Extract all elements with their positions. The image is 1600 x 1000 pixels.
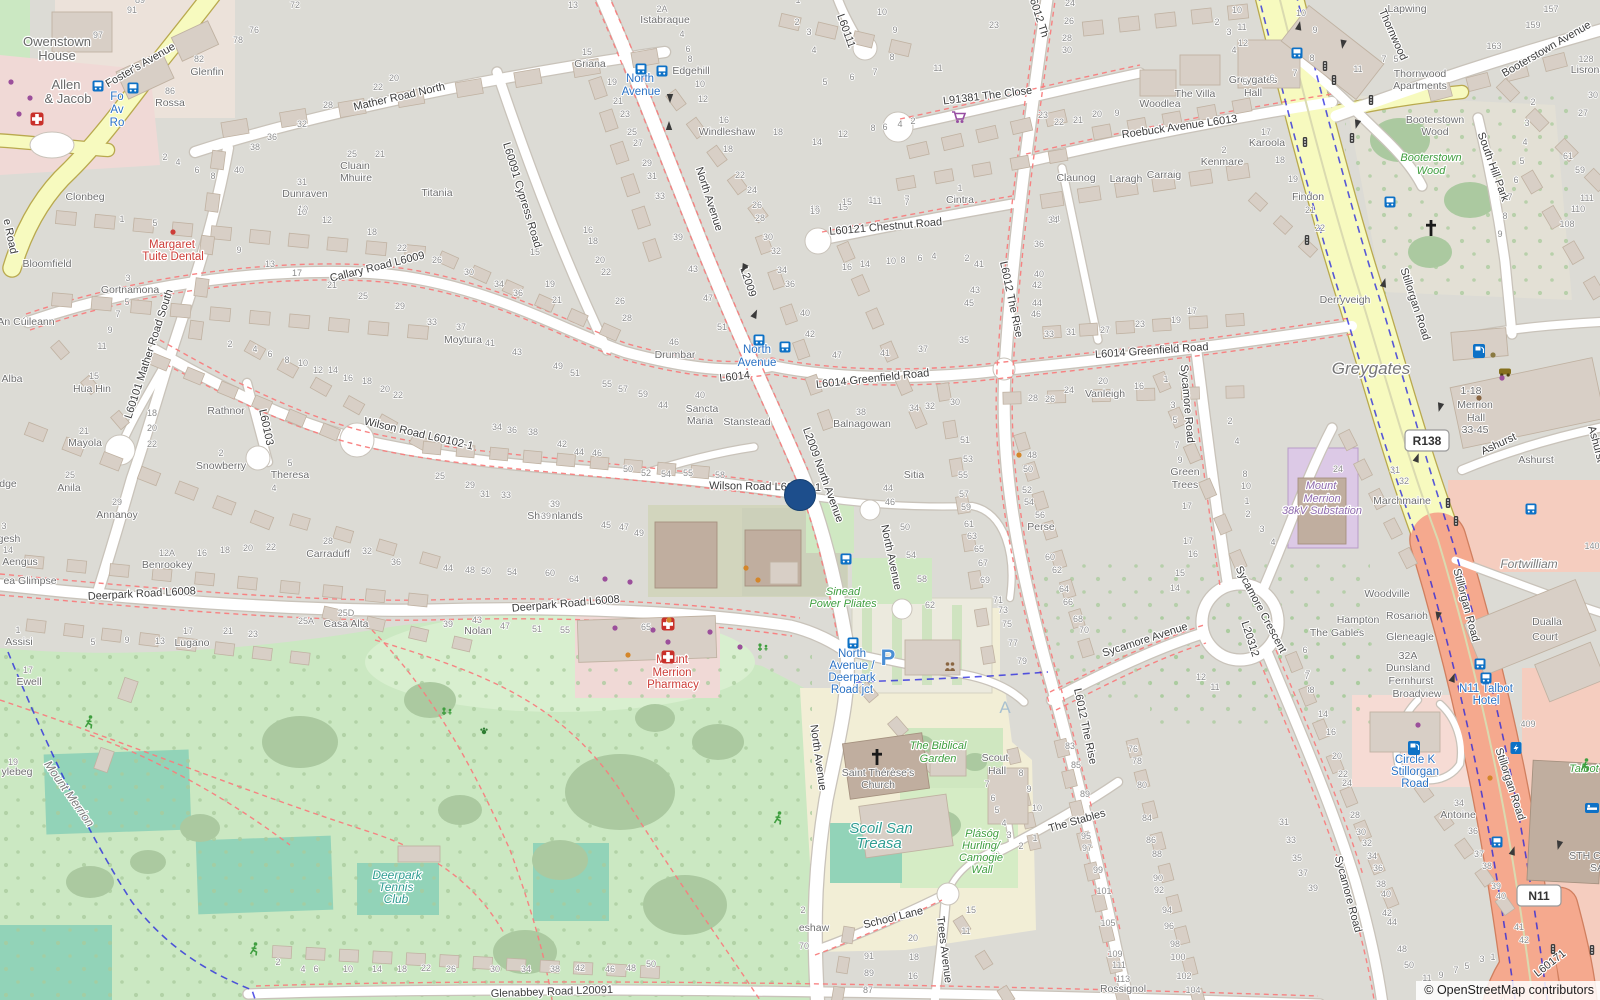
map-label: Lapwing xyxy=(1387,3,1426,15)
map-label: 28 xyxy=(622,313,632,323)
map-label: 35 xyxy=(1292,853,1302,863)
map-label: 32A xyxy=(1399,650,1418,662)
building xyxy=(557,453,576,467)
poi-dot xyxy=(707,629,712,634)
building xyxy=(1232,98,1252,114)
map-label: 5 xyxy=(152,218,157,228)
tree-cluster xyxy=(635,704,675,732)
building xyxy=(205,193,220,213)
building xyxy=(210,150,225,170)
poi-dot xyxy=(755,577,760,582)
bus-icon xyxy=(1385,197,1396,208)
map-label: 48 xyxy=(1027,450,1037,460)
map-label: 91 xyxy=(127,5,137,15)
selected-location-marker[interactable] xyxy=(785,480,816,511)
map-label: 26 xyxy=(1064,16,1074,26)
building xyxy=(837,241,855,262)
map-label: 2 xyxy=(1245,509,1250,519)
map-label: North xyxy=(838,648,866,660)
map-label: 36 xyxy=(513,288,523,298)
map-label: 26 xyxy=(615,296,625,306)
map-label: Tuite Dental xyxy=(142,251,204,263)
map-label: 10 xyxy=(1296,8,1306,18)
map-label: 12A xyxy=(159,548,175,558)
map-label: 32 xyxy=(297,119,307,129)
map-label: 104 xyxy=(1185,985,1200,995)
map-label: Snowberry xyxy=(196,460,247,472)
map-label: 37 xyxy=(456,322,466,332)
map-label: 5 xyxy=(1464,961,1469,971)
building xyxy=(1226,386,1244,398)
building xyxy=(323,585,343,599)
map-label: 7 xyxy=(1453,965,1458,975)
map-label: 36 xyxy=(1373,863,1383,873)
osm-map: Foster's AvenueMather Road NorthCallary … xyxy=(0,0,1600,1000)
map-label: 40 xyxy=(1381,889,1391,899)
map-label: House xyxy=(38,48,76,63)
map-label: 46 xyxy=(885,497,895,507)
junction-circle xyxy=(30,132,74,158)
map-label: Av xyxy=(110,104,123,116)
map-label: 1 xyxy=(1032,833,1037,843)
building xyxy=(974,608,989,627)
map-label: 50 xyxy=(900,522,910,532)
map-label: 20 xyxy=(380,384,390,394)
map-label: 22 xyxy=(421,963,431,973)
poi-dot xyxy=(1487,775,1492,780)
tree-cluster xyxy=(692,724,744,760)
building xyxy=(770,562,798,584)
building xyxy=(91,296,112,311)
map-label: 25 xyxy=(435,471,445,481)
map-label: 6 xyxy=(990,793,995,803)
poi-dot xyxy=(650,627,655,632)
map-label: 20 xyxy=(1098,376,1108,386)
oneway-arrow xyxy=(1436,402,1445,412)
map-label: 64 xyxy=(569,574,579,584)
map-label: 4 xyxy=(1234,436,1239,446)
map-label: 8 xyxy=(687,54,692,64)
map-label: Garden xyxy=(920,753,957,765)
map-label: 15 xyxy=(966,905,976,915)
map-label: 7 xyxy=(115,309,120,319)
map-label: 4 xyxy=(1231,45,1236,55)
map-label: The Biblical xyxy=(910,740,967,752)
map-label: 14 xyxy=(328,365,338,375)
map-label: Plásóg xyxy=(965,828,1000,840)
map-label: 17 xyxy=(183,626,193,636)
map-label: 50 xyxy=(646,959,656,969)
map-label: 66 xyxy=(1063,597,1073,607)
osm-attribution[interactable]: © OpenStreetMap contributors xyxy=(1416,981,1600,1000)
map-label: Perse xyxy=(1027,521,1055,533)
map-label: Rossa xyxy=(155,97,185,109)
map-label: Marchmaine xyxy=(1373,495,1431,507)
building xyxy=(214,642,234,656)
map-label: North xyxy=(626,73,654,85)
map-label: 4 xyxy=(811,45,816,55)
building xyxy=(934,169,954,184)
map-label: Avenue / xyxy=(829,660,875,672)
map-label: 8 xyxy=(1018,768,1023,778)
map-label: 1 xyxy=(795,0,800,5)
map-label: 13 xyxy=(155,636,165,646)
map-label: 7 xyxy=(872,67,877,77)
map-label: 4 xyxy=(300,964,305,974)
building xyxy=(643,238,662,261)
svg-text:N11: N11 xyxy=(1528,889,1550,903)
map-label: 26 xyxy=(1045,394,1055,404)
map-label: 50 xyxy=(1404,960,1414,970)
building xyxy=(1273,216,1292,235)
map-label: Rossignol xyxy=(1100,983,1146,995)
map-label: 40 xyxy=(234,165,244,175)
map-label: Casa Alta xyxy=(324,618,369,630)
building xyxy=(831,986,844,1000)
map-label: Sancta xyxy=(686,403,719,415)
map-label: N11 Talbot xyxy=(1459,683,1514,695)
map-label: 14 xyxy=(860,259,870,269)
map-label: 3 xyxy=(806,27,811,37)
map-label: 46 xyxy=(592,448,602,458)
building xyxy=(599,109,618,132)
building xyxy=(249,229,270,244)
map-label: 7 xyxy=(1292,68,1297,78)
map-label: Power Pliates xyxy=(809,598,877,610)
map-label: 2 xyxy=(1214,17,1219,27)
map-label: 41 xyxy=(974,259,984,269)
map-label: 99 xyxy=(1093,865,1103,875)
map-label: 88 xyxy=(1152,849,1162,859)
map-label: 25 xyxy=(358,291,368,301)
map-label: 16 xyxy=(197,548,207,558)
building xyxy=(1082,20,1103,36)
map-label: 140 xyxy=(1584,541,1599,551)
map-label: 111 xyxy=(1580,193,1594,203)
map-label: 5 xyxy=(1172,415,1177,425)
map-label: 3 xyxy=(1226,27,1231,37)
building xyxy=(1584,168,1600,191)
map-canvas[interactable]: Foster's AvenueMather Road NorthCallary … xyxy=(0,0,1600,1000)
map-label: 45 xyxy=(601,520,611,530)
poi-dot xyxy=(743,565,748,570)
map-label: 2 xyxy=(1227,416,1232,426)
map-label: 7 xyxy=(904,197,909,207)
map-label: 4 xyxy=(931,251,936,261)
map-label: 7 xyxy=(1174,440,1179,450)
map-label: 12 xyxy=(838,129,848,139)
traffic-icon xyxy=(1332,75,1336,85)
map-label: 19 xyxy=(1288,174,1298,184)
map-label: 41 xyxy=(880,348,890,358)
map-label: 89 xyxy=(135,0,145,5)
map-label: 43 xyxy=(512,347,522,357)
map-label: 32 xyxy=(771,246,781,256)
map-label: 34 xyxy=(909,403,919,413)
building xyxy=(194,278,209,298)
map-label: Merrion xyxy=(1457,399,1493,411)
junction-circle xyxy=(246,446,270,470)
bus-icon xyxy=(657,66,668,77)
map-label: A xyxy=(999,698,1011,717)
map-label: 54 xyxy=(507,567,517,577)
building xyxy=(1003,392,1021,404)
map-label: 32 xyxy=(362,546,372,556)
map-label: 19 xyxy=(810,206,820,216)
pharmacy-icon xyxy=(662,651,675,664)
map-label: 36 xyxy=(1468,826,1478,836)
map-label: 83 xyxy=(1065,741,1075,751)
map-label: Hurling/ xyxy=(962,840,1001,852)
map-label: 21 xyxy=(223,626,233,636)
map-label: 5 xyxy=(1393,54,1398,64)
map-label: Thornwood xyxy=(1394,68,1447,80)
map-label: 36 xyxy=(785,279,795,289)
map-label: 32 xyxy=(1362,838,1372,848)
map-label: Merrion xyxy=(653,667,692,679)
map-label: 12 xyxy=(1238,38,1248,48)
map-label: 18 xyxy=(220,545,230,555)
building xyxy=(1079,323,1098,336)
map-label: 21 xyxy=(1073,115,1083,125)
map-label: 42 xyxy=(1519,935,1529,945)
building xyxy=(490,447,509,461)
map-label: 43 xyxy=(472,615,482,625)
map-label: 67 xyxy=(978,558,988,568)
building xyxy=(1370,712,1440,752)
map-label: Wood xyxy=(1417,165,1447,177)
map-label: 44 xyxy=(574,447,584,457)
poi-dot xyxy=(16,111,21,116)
map-label: The Villa xyxy=(1175,88,1216,100)
map-label: 18 xyxy=(397,964,407,974)
map-label: 1 xyxy=(119,214,124,224)
map-label: 51 xyxy=(570,368,580,378)
building xyxy=(368,321,389,336)
map-label: 34 xyxy=(1454,798,1464,808)
map-label: 45 xyxy=(964,298,974,308)
map-label: 9 xyxy=(1497,229,1502,239)
map-label: 3 xyxy=(1006,830,1011,840)
route-shield: N11 xyxy=(1517,885,1561,906)
map-label: 80 xyxy=(1137,780,1147,790)
building xyxy=(691,465,710,479)
map-label: P xyxy=(881,645,896,670)
map-label: 24 xyxy=(1342,778,1352,788)
map-label: 69 xyxy=(980,575,990,585)
building xyxy=(67,559,87,573)
map-label: 26 xyxy=(752,200,762,210)
map-label: 30 xyxy=(1356,827,1366,837)
map-label: 31 xyxy=(480,489,490,499)
map-label: 17 xyxy=(1187,306,1197,316)
map-label: 63 xyxy=(967,531,977,541)
map-label: 15 xyxy=(842,197,852,207)
bus-icon xyxy=(93,81,104,92)
poi-dot xyxy=(1490,352,1495,357)
tree-cluster xyxy=(180,814,220,842)
map-label: 42 xyxy=(805,329,815,339)
map-label: 7 xyxy=(1507,192,1512,202)
map-label: 14 xyxy=(372,964,382,974)
map-label: Carraduff xyxy=(306,548,350,560)
building xyxy=(252,646,272,660)
map-label: 6 xyxy=(267,349,272,359)
car-icon xyxy=(1499,369,1511,377)
map-label: 41 xyxy=(1514,922,1524,932)
map-label: 48 xyxy=(1397,944,1407,954)
map-label: Wall xyxy=(971,864,993,876)
bus-icon xyxy=(636,64,647,75)
map-label: 22 xyxy=(373,82,383,92)
map-label: 3 xyxy=(1170,400,1175,410)
map-label: Balnagowan xyxy=(833,418,891,430)
map-label: 20 xyxy=(389,73,399,83)
map-label: Titania xyxy=(421,187,452,199)
map-label: 39 xyxy=(1491,881,1501,891)
map-label: 70 xyxy=(1079,625,1089,635)
map-label: 8 xyxy=(210,171,215,181)
building xyxy=(373,951,393,964)
building xyxy=(1040,191,1064,208)
map-label: 43 xyxy=(688,264,698,274)
map-label: 70 xyxy=(799,941,809,951)
map-label: 91 xyxy=(864,951,874,961)
map-label: 33 xyxy=(655,191,665,201)
building xyxy=(590,456,609,470)
map-label: 2 xyxy=(227,339,232,349)
building xyxy=(408,593,428,607)
map-label: 49 xyxy=(553,361,563,371)
map-label: L2009 xyxy=(737,266,758,299)
map-label: 27 xyxy=(633,138,643,148)
map-label: 21 xyxy=(613,96,623,106)
map-label: 34 xyxy=(1048,215,1058,225)
map-label: Fortwilliam xyxy=(1500,557,1557,571)
map-label: Avenue xyxy=(738,357,777,369)
map-label: 2 xyxy=(1530,97,1535,107)
building xyxy=(1032,491,1049,511)
map-label: 5 xyxy=(822,77,827,87)
map-label: 108 xyxy=(1559,219,1574,229)
building xyxy=(976,125,998,142)
map-label: 4 xyxy=(175,157,180,167)
map-label: 38 xyxy=(856,407,866,417)
map-label: 18 xyxy=(367,227,377,237)
map-label: 39 xyxy=(541,511,551,521)
map-label: Pharmacy xyxy=(647,679,699,691)
map-label: 20 xyxy=(595,255,605,265)
map-label: 23 xyxy=(989,20,999,30)
map-label: 21 xyxy=(79,426,89,436)
map-label: 25 xyxy=(65,470,75,480)
map-label: 97 xyxy=(1082,843,1092,853)
map-label: 19 xyxy=(545,279,555,289)
bus-icon xyxy=(1526,504,1537,515)
map-label: 9 xyxy=(1114,108,1119,118)
bed-icon xyxy=(1585,803,1599,813)
map-label: 84 xyxy=(1142,813,1152,823)
map-label: 71 xyxy=(993,595,1003,605)
map-label: 12 xyxy=(313,365,323,375)
map-label: Istabraque xyxy=(640,14,690,26)
map-label: 39 xyxy=(550,499,560,509)
map-label: Clonbeg xyxy=(65,191,104,203)
map-label: Road jct xyxy=(831,684,874,696)
building xyxy=(1340,786,1358,807)
building xyxy=(310,377,332,396)
map-label: 21 xyxy=(552,295,562,305)
map-label: 22 xyxy=(397,243,407,253)
route-shield: R138 xyxy=(1405,430,1449,451)
map-label: 6 xyxy=(194,165,199,175)
map-label: 29 xyxy=(395,301,405,311)
map-label: 10 xyxy=(1032,803,1042,813)
map-label: 41 xyxy=(485,338,495,348)
map-label: 46 xyxy=(669,337,679,347)
map-label: 38 xyxy=(1482,861,1492,871)
map-label: 89 xyxy=(1080,789,1090,799)
map-label: Hua Hin xyxy=(73,383,111,395)
map-label: 27 xyxy=(1100,325,1110,335)
map-label: 2 xyxy=(162,152,167,162)
map-label: 2 xyxy=(275,957,280,967)
building xyxy=(26,619,46,633)
map-label: 33 xyxy=(1044,329,1054,339)
map-label: 51 xyxy=(960,435,970,445)
map-label: 8 xyxy=(1309,53,1314,63)
tree-cluster xyxy=(404,682,456,718)
map-label: 25 xyxy=(347,149,357,159)
map-label: SA xyxy=(1590,862,1600,874)
map-label: 111 xyxy=(1112,960,1126,970)
map-label: 13 xyxy=(568,0,578,10)
map-label: Treasa xyxy=(856,835,902,852)
map-label: Sitia xyxy=(904,469,925,481)
map-label: 13 xyxy=(265,259,275,269)
map-label: 20 xyxy=(908,933,918,943)
map-label: 16 xyxy=(583,225,593,235)
map-label: Fo xyxy=(110,91,123,103)
building xyxy=(175,481,198,500)
map-label: Ashurst xyxy=(1585,425,1600,464)
building xyxy=(1014,432,1031,452)
map-label: 39 xyxy=(1308,883,1318,893)
map-label: 58 xyxy=(715,470,725,480)
map-label: Merrion xyxy=(1303,493,1340,505)
map-label: 52 xyxy=(641,468,651,478)
road xyxy=(900,73,1140,127)
map-label: 11 xyxy=(872,196,881,206)
map-label: 100 xyxy=(1170,952,1185,962)
map-label: 23 xyxy=(1135,319,1145,329)
map-label: Stillorgan xyxy=(1391,766,1439,778)
map-label: 6 xyxy=(1269,73,1274,83)
map-label: 16 xyxy=(719,115,729,125)
map-label: 55 xyxy=(683,468,693,478)
map-label: 4 xyxy=(897,119,902,129)
playground-icon xyxy=(758,643,768,651)
map-label: 47 xyxy=(832,350,842,360)
building xyxy=(51,340,70,359)
map-label: 10 xyxy=(297,207,307,217)
map-label: An Cúileann xyxy=(0,316,55,328)
building xyxy=(249,310,270,325)
map-label: Road xyxy=(1401,778,1429,790)
map-label: 19 xyxy=(1171,315,1181,325)
map-label: 76 xyxy=(1128,744,1138,754)
poi-dot xyxy=(625,652,630,657)
